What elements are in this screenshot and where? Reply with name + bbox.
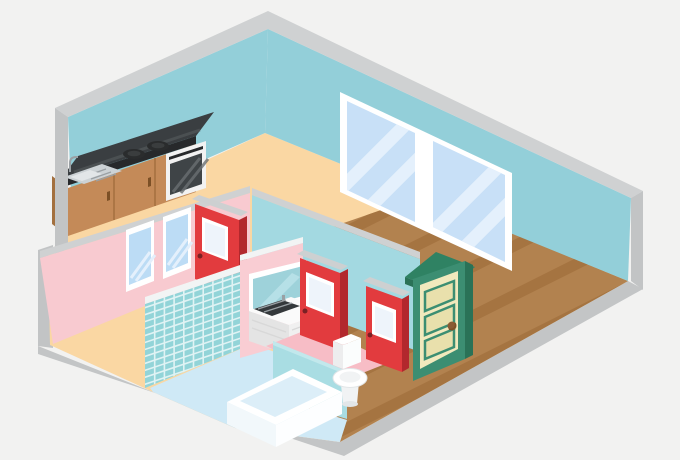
burner-ring	[152, 143, 165, 149]
cabinet-handle	[107, 191, 110, 201]
door-knob	[303, 309, 308, 314]
toilet-base	[342, 401, 358, 407]
small-window-2	[163, 207, 192, 279]
illustration-canvas	[0, 0, 680, 460]
trim-right-column	[631, 191, 643, 290]
trim-left-column	[55, 108, 68, 256]
burner-ring	[128, 151, 141, 157]
small-window-1	[126, 220, 155, 292]
door-knob	[368, 333, 373, 338]
door-knob	[198, 254, 203, 259]
toilet-seat-inner	[340, 372, 361, 383]
isometric-room-illustration	[0, 0, 680, 460]
cabinet-handle	[148, 177, 151, 187]
vanity-faucet	[282, 295, 285, 301]
door-side	[402, 295, 409, 372]
door-side	[465, 261, 473, 359]
toilet-tank-left	[333, 341, 343, 369]
